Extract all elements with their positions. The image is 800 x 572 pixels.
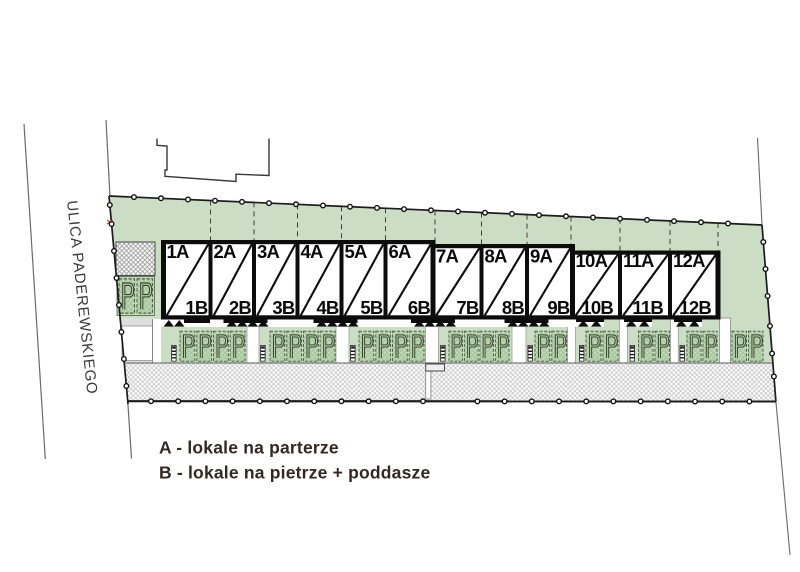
svg-text:B - lokale na pietrze + poddas: B - lokale na pietrze + poddasze bbox=[159, 463, 430, 483]
svg-text:9B: 9B bbox=[547, 297, 570, 318]
svg-text:6B: 6B bbox=[408, 297, 431, 318]
svg-text:5A: 5A bbox=[345, 241, 368, 262]
svg-text:7B: 7B bbox=[456, 297, 479, 318]
svg-text:11B: 11B bbox=[632, 297, 663, 318]
svg-text:10B: 10B bbox=[581, 297, 613, 318]
svg-text:3B: 3B bbox=[272, 297, 295, 318]
svg-text:5B: 5B bbox=[360, 297, 383, 318]
svg-text:3A: 3A bbox=[257, 241, 280, 262]
svg-text:12A: 12A bbox=[673, 250, 705, 271]
svg-text:6A: 6A bbox=[389, 241, 412, 262]
svg-text:11A: 11A bbox=[623, 250, 654, 271]
svg-text:9A: 9A bbox=[530, 246, 553, 267]
svg-text:A - lokale na parterze: A - lokale na parterze bbox=[159, 438, 339, 458]
svg-text:4B: 4B bbox=[316, 297, 339, 318]
svg-text:2A: 2A bbox=[214, 241, 237, 262]
svg-text:4A: 4A bbox=[301, 241, 324, 262]
svg-text:12B: 12B bbox=[679, 297, 711, 318]
svg-text:1A: 1A bbox=[167, 241, 190, 262]
svg-text:2B: 2B bbox=[229, 297, 252, 318]
svg-text:7A: 7A bbox=[436, 246, 459, 267]
svg-text:10A: 10A bbox=[576, 250, 608, 271]
svg-text:8B: 8B bbox=[502, 297, 525, 318]
svg-text:1B: 1B bbox=[185, 297, 208, 318]
svg-text:8A: 8A bbox=[485, 246, 508, 267]
